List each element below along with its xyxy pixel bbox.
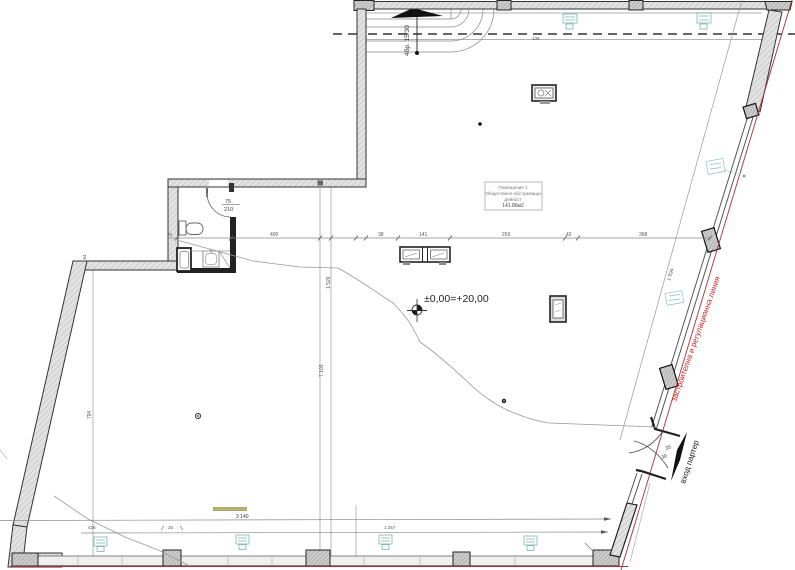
svg-text:203: 203 — [502, 232, 511, 238]
svg-text:139: 139 — [532, 36, 540, 41]
svg-text:1 526: 1 526 — [326, 276, 332, 289]
svg-text:Помещение 1: Помещение 1 — [498, 185, 528, 190]
svg-text:368: 368 — [639, 232, 648, 238]
svg-text:Обществено-обслужваща: Обществено-обслужваща — [485, 191, 541, 196]
svg-text:4бр. 15/30: 4бр. 15/30 — [403, 25, 411, 56]
svg-text:25: 25 — [168, 525, 174, 530]
svg-text:25: 25 — [167, 232, 173, 237]
svg-text:1 257: 1 257 — [384, 525, 396, 530]
svg-text:400: 400 — [270, 232, 279, 238]
svg-text:3 140: 3 140 — [236, 514, 249, 520]
svg-text:7 103: 7 103 — [319, 364, 325, 377]
svg-text:426: 426 — [88, 525, 96, 530]
svg-text:164: 164 — [82, 254, 87, 262]
svg-text:141.86м2: 141.86м2 — [502, 203, 524, 209]
svg-text:38: 38 — [378, 232, 384, 238]
svg-text:±0,00=+20,00: ±0,00=+20,00 — [424, 293, 489, 305]
svg-text:210: 210 — [224, 207, 233, 213]
svg-text:75: 75 — [225, 199, 231, 205]
svg-text:42: 42 — [566, 232, 572, 238]
svg-text:дейност: дейност — [504, 196, 522, 202]
svg-text:794: 794 — [87, 410, 93, 419]
svg-text:141: 141 — [419, 232, 428, 238]
